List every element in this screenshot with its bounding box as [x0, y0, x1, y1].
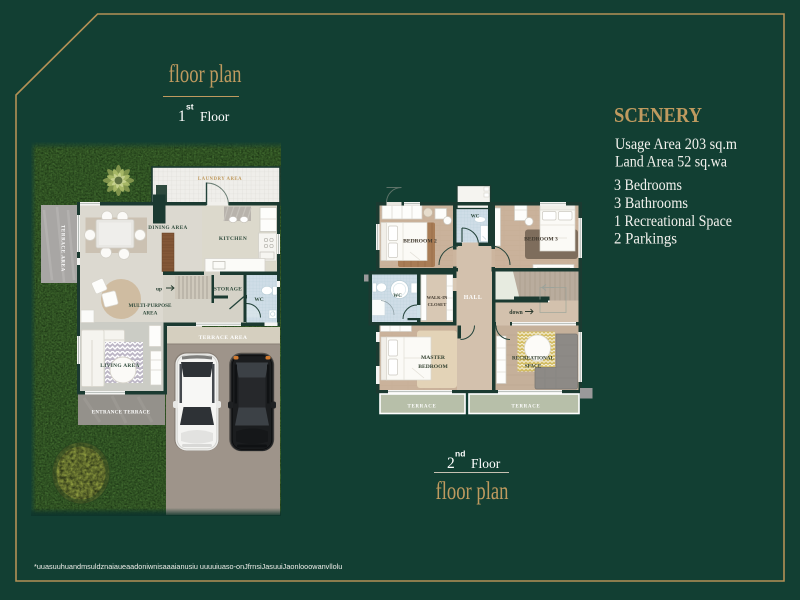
svg-text:down: down [509, 310, 523, 316]
svg-text:SCENERY: SCENERY [614, 103, 702, 127]
svg-text:3 Bedrooms: 3 Bedrooms [614, 177, 682, 194]
svg-text:BEDROOM 3: BEDROOM 3 [524, 237, 558, 243]
svg-text:TERRACE AREA: TERRACE AREA [199, 335, 248, 341]
svg-text:WC: WC [393, 294, 402, 299]
svg-text:STORAGE: STORAGE [214, 287, 242, 293]
svg-text:st: st [186, 102, 194, 112]
svg-text:1 Recreational Space: 1 Recreational Space [614, 213, 732, 230]
svg-text:2: 2 [447, 455, 455, 472]
svg-text:2 Parkings: 2 Parkings [614, 231, 677, 248]
svg-text:RECREATIONAL: RECREATIONAL [512, 356, 555, 362]
svg-text:BEDROOM 2: BEDROOM 2 [403, 239, 437, 245]
svg-text:CLOSET: CLOSET [428, 302, 447, 307]
svg-text:TERRACE: TERRACE [511, 405, 540, 410]
svg-text:SPACE: SPACE [525, 364, 542, 370]
svg-text:TERRACE AREA: TERRACE AREA [60, 225, 65, 272]
svg-text:BEDROOM: BEDROOM [418, 364, 448, 370]
svg-text:floor plan: floor plan [169, 61, 242, 88]
svg-text:1: 1 [178, 108, 186, 125]
svg-text:LIVING AREA: LIVING AREA [100, 363, 139, 369]
svg-text:*uuasuuhuandmsuldznaiaueaadoni: *uuasuuhuandmsuldznaiaueaadoniwnisaaaian… [34, 562, 342, 571]
svg-text:ENTRANCE TERRACE: ENTRANCE TERRACE [92, 411, 151, 416]
svg-text:nd: nd [455, 449, 465, 459]
svg-text:Floor: Floor [471, 456, 501, 471]
svg-text:up: up [156, 287, 162, 293]
svg-text:3 Bathrooms: 3 Bathrooms [614, 195, 688, 212]
svg-text:Floor: Floor [200, 109, 230, 124]
svg-text:WALK-IN: WALK-IN [427, 295, 448, 300]
svg-text:Land Area 52 sq.wa: Land Area 52 sq.wa [615, 154, 727, 171]
svg-text:AREA: AREA [143, 311, 158, 317]
svg-text:WC: WC [471, 215, 480, 220]
svg-text:LAUNDRY AREA: LAUNDRY AREA [198, 177, 242, 182]
svg-text:KITCHEN: KITCHEN [219, 236, 247, 242]
svg-text:HALL: HALL [464, 295, 482, 301]
svg-text:TERRACE: TERRACE [407, 405, 436, 410]
svg-text:Usage Area 203 sq.m: Usage Area 203 sq.m [615, 136, 737, 153]
svg-text:floor plan: floor plan [436, 478, 509, 505]
svg-text:MASTER: MASTER [421, 355, 446, 361]
svg-text:MULTI-PURPOSE: MULTI-PURPOSE [128, 303, 172, 309]
svg-text:WC: WC [254, 297, 263, 303]
svg-text:DINING AREA: DINING AREA [148, 225, 187, 231]
